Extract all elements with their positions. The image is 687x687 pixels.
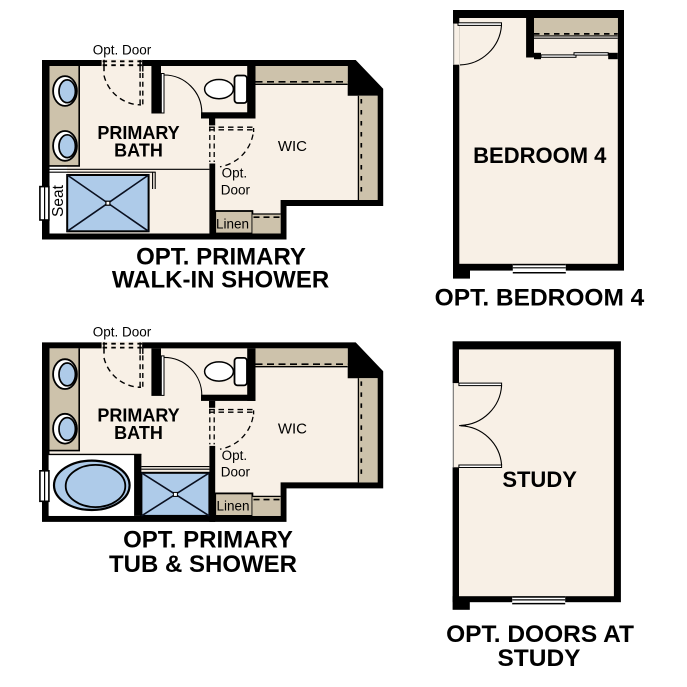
svg-text:OPT. DOORS AT: OPT. DOORS AT [446,621,634,648]
svg-text:WIC: WIC [278,421,307,438]
svg-text:Opt.: Opt. [222,166,248,181]
svg-text:Linen: Linen [216,499,249,514]
svg-text:BATH: BATH [114,423,163,443]
svg-text:Door: Door [221,182,251,197]
svg-text:Opt. Door: Opt. Door [93,42,152,57]
svg-text:STUDY: STUDY [502,467,577,492]
svg-text:Seat: Seat [50,184,67,217]
svg-text:TUB & SHOWER: TUB & SHOWER [109,551,297,578]
svg-text:WALK-IN SHOWER: WALK-IN SHOWER [112,266,329,293]
svg-text:Opt.: Opt. [222,448,248,463]
svg-text:BATH: BATH [114,141,163,161]
svg-text:BEDROOM 4: BEDROOM 4 [473,143,607,168]
svg-text:OPT. PRIMARY: OPT. PRIMARY [123,527,293,554]
svg-text:STUDY: STUDY [497,645,580,672]
svg-text:Linen: Linen [216,216,249,231]
svg-text:WIC: WIC [278,138,307,155]
svg-text:Door: Door [221,464,251,479]
svg-text:Opt. Door: Opt. Door [93,325,152,340]
svg-text:OPT. BEDROOM 4: OPT. BEDROOM 4 [435,285,645,312]
